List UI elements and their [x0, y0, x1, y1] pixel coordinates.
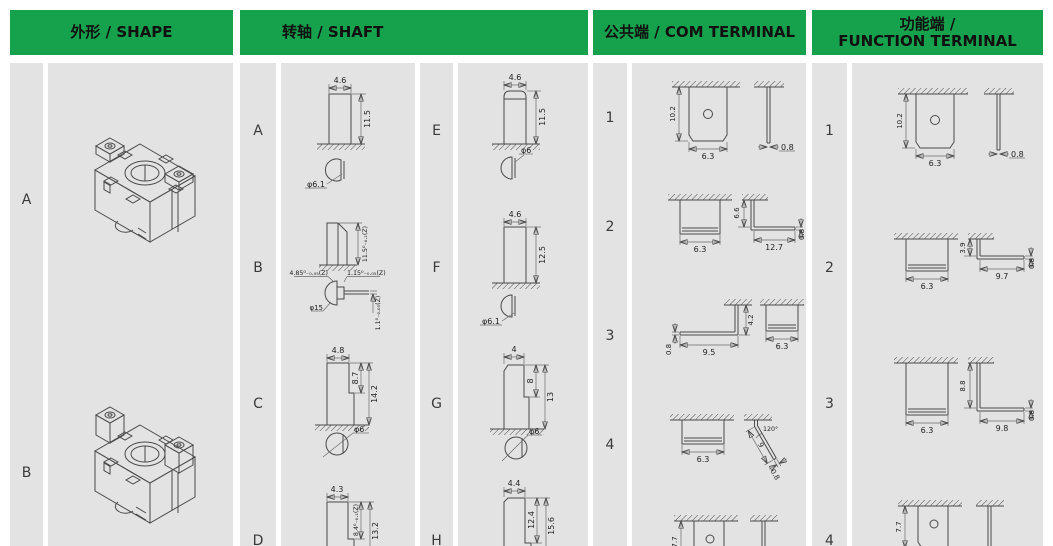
dim-label: 4.2 [747, 314, 755, 325]
shaft-b-cell: 11.5⁰₋₀.₁(Z) 4.85⁰₋₀.₀₅(Z) 1.15⁰₋₀.₀₅(Z)… [281, 200, 415, 337]
function-2-cell: 6.3 3.9 9.7 0.8 [852, 200, 1043, 337]
shaft-drawing-column-2: 4.6 11.5 φ6 4.6 12.5 [458, 63, 588, 546]
shaft-e-drawing: 4.6 11.5 φ6 [458, 72, 588, 190]
shaft-g-drawing: 4 8 13 φ6 [458, 345, 588, 463]
shaft-c-cell: 4.8 8.7 14.2 φ6 [281, 336, 415, 473]
dim-label: 12.7 [765, 243, 783, 252]
dim-label: 4.85⁰₋₀.₀₅(Z) [289, 270, 328, 277]
header-shape-label: 外形 / SHAPE [70, 24, 172, 41]
dim-label: 3.9 [959, 242, 967, 253]
dim-label: 0.8 [798, 229, 806, 240]
shape-b-cell [48, 336, 233, 546]
dim-label: 0.8 [665, 344, 673, 355]
com-terminal-4-drawing: 6.3 120° 9 0.8 [632, 398, 806, 492]
dim-label: 6.3 [697, 455, 710, 464]
dim-label: φ6.1 [307, 180, 325, 189]
dim-label: 14.2 [370, 385, 379, 403]
shape-row-label-b: B [10, 336, 43, 546]
header-shaft-label: 转轴 / SHAFT [282, 24, 383, 41]
dim-label: 7.7 [671, 537, 679, 546]
com-terminal-1-drawing: 10.2 6.3 0.8 [632, 71, 806, 165]
function-terminal-1-drawing: 10.2 6.3 0.8 [852, 72, 1043, 190]
com-drawing-column: 10.2 6.3 0.8 6.3 [632, 63, 806, 546]
dim-label: 13.2 [371, 522, 380, 540]
shape-b-isometric-drawing [48, 355, 233, 546]
shaft-row-label-g: G [420, 336, 453, 473]
com-terminal-2-drawing: 6.3 6.6 12.7 0.8 [632, 180, 806, 274]
com-4-cell: 6.3 120° 9 0.8 [632, 391, 806, 500]
shaft-row-label-b: B [240, 200, 276, 337]
shaft-label-column-1: A B C D [240, 63, 276, 546]
dim-label: 120° [763, 425, 778, 433]
shape-row-label-a: A [10, 63, 43, 336]
shaft-f-drawing: 4.6 12.5 φ6.1 [458, 209, 588, 327]
shaft-row-label-e: E [420, 63, 453, 200]
header-function-terminal: 功能端 / FUNCTION TERMINAL [812, 10, 1043, 55]
dim-label: 13 [546, 392, 555, 402]
dim-label: 6.3 [694, 245, 707, 254]
com-3-cell: 0.8 9.5 4.2 6.3 [632, 281, 806, 390]
shaft-h-cell: 4.4 12.4 15.6 φ6 [458, 473, 588, 546]
com-row-label-4: 4 [593, 391, 627, 500]
dim-label: 1.1⁰₋₀.₀₅(Z) [375, 295, 382, 330]
dim-label: 12.4 [527, 511, 536, 529]
shape-a-isometric-drawing [48, 82, 233, 318]
dim-label: 6.3 [702, 152, 715, 161]
shaft-d-drawing: 4.3 8.4⁰₋₀.₁(Z) 13.2 φ6 [281, 482, 415, 546]
shaft-f-cell: 4.6 12.5 φ6.1 [458, 200, 588, 337]
shaft-c-drawing: 4.8 8.7 14.2 φ6 [281, 345, 415, 463]
shaft-b-drawing: 11.5⁰₋₀.₁(Z) 4.85⁰₋₀.₀₅(Z) 1.15⁰₋₀.₀₅(Z)… [281, 209, 415, 327]
dim-label: φ6 [529, 427, 539, 436]
function-row-label-3: 3 [812, 336, 847, 473]
iso-body-b [95, 407, 195, 523]
dim-label: 7.7 [895, 521, 903, 532]
function-terminal-2-drawing: 6.3 3.9 9.7 0.8 [852, 209, 1043, 327]
dim-label: 4.8 [332, 346, 345, 355]
dim-label: φ6 [354, 425, 364, 434]
header-com-label: 公共端 / COM TERMINAL [604, 24, 795, 41]
dim-label: φ6.1 [482, 317, 500, 326]
com-5-cell: 7.7 4.8 0.8 [632, 500, 806, 546]
header-fn-label-line1: 功能端 / [900, 16, 956, 33]
dim-label: 8.8 [959, 381, 967, 392]
dim-label: 0.8 [1028, 410, 1036, 421]
com-terminal-5-drawing: 7.7 4.8 0.8 [632, 507, 806, 546]
function-terminal-3-drawing: 6.3 8.8 9.8 0.8 [852, 345, 1043, 463]
shaft-label-column-2: E F G H [420, 63, 453, 546]
shape-a-cell [48, 63, 233, 336]
shaft-a-drawing: 4.6 11.5 φ6.1 [281, 72, 415, 190]
dim-label: 6.3 [929, 159, 942, 168]
shaft-g-cell: 4 8 13 φ6 [458, 336, 588, 473]
iso-body-a [95, 138, 195, 242]
dim-label: 0.8 [1028, 258, 1036, 269]
function-terminal-4-drawing: 7.7 4.8 0.8 [852, 482, 1043, 546]
header-shape: 外形 / SHAPE [10, 10, 233, 55]
shape-label-column: A B [10, 63, 43, 546]
shaft-e-cell: 4.6 11.5 φ6 [458, 63, 588, 200]
dim-label: 4.3 [331, 485, 344, 494]
dim-label: 10.2 [669, 106, 677, 122]
dim-label: 6.3 [921, 426, 934, 435]
dim-label: φ6 [521, 146, 531, 155]
dim-label: 6.3 [921, 282, 934, 291]
dim-label: 11.5⁰₋₀.₁(Z) [362, 226, 369, 262]
dim-label: 4.4 [508, 479, 521, 488]
dim-label: 9.8 [996, 424, 1009, 433]
dim-label: 15.6 [547, 517, 556, 535]
shape-drawing-column [48, 63, 233, 546]
header-com-terminal: 公共端 / COM TERMINAL [593, 10, 806, 55]
dim-label: 8.7 [351, 372, 360, 385]
shaft-d-cell: 4.3 8.4⁰₋₀.₁(Z) 13.2 φ6 [281, 473, 415, 546]
shaft-row-label-c: C [240, 336, 276, 473]
dim-label: 9 [756, 441, 765, 449]
dim-label: 11.5 [538, 108, 547, 126]
com-1-cell: 10.2 6.3 0.8 [632, 63, 806, 172]
shaft-row-label-f: F [420, 200, 453, 337]
shaft-row-label-d: D [240, 473, 276, 546]
com-row-label-2: 2 [593, 172, 627, 281]
dim-label: 0.8 [781, 143, 794, 152]
dim-label: 1.15⁰₋₀.₀₅(Z) [347, 270, 386, 277]
function-4-cell: 7.7 4.8 0.8 [852, 473, 1043, 546]
dim-label: 6.3 [776, 342, 789, 351]
shaft-h-drawing: 4.4 12.4 15.6 φ6 [458, 482, 588, 546]
function-row-label-2: 2 [812, 200, 847, 337]
datasheet-page: 外形 / SHAPE 转轴 / SHAFT 公共端 / COM TERMINAL… [0, 0, 1053, 546]
dim-label: 11.5 [363, 110, 372, 128]
dim-label: 4.6 [334, 76, 347, 85]
dim-label: 8 [526, 379, 535, 384]
shaft-drawing-column-1: 4.6 11.5 φ6.1 11.5⁰₋₀.₁(Z) 4.85⁰₋₀. [281, 63, 415, 546]
dim-label: 4.6 [509, 73, 522, 82]
com-2-cell: 6.3 6.6 12.7 0.8 [632, 172, 806, 281]
function-row-label-1: 1 [812, 63, 847, 200]
shaft-a-cell: 4.6 11.5 φ6.1 [281, 63, 415, 200]
shaft-row-label-a: A [240, 63, 276, 200]
dim-label: 0.8 [769, 468, 781, 482]
com-row-label-5: 5 [593, 500, 627, 546]
shaft-row-label-h: H [420, 473, 453, 546]
com-row-label-1: 1 [593, 63, 627, 172]
dim-label: 12.5 [538, 246, 547, 264]
dim-label: 10.2 [896, 113, 904, 129]
dim-label: 9.5 [703, 348, 716, 357]
function-3-cell: 6.3 8.8 9.8 0.8 [852, 336, 1043, 473]
function-label-column: 1 2 3 4 [812, 63, 847, 546]
com-label-column: 1 2 3 4 5 [593, 63, 627, 546]
dim-label: 6.6 [733, 207, 741, 219]
dim-label: 9.7 [996, 272, 1009, 281]
header-shaft: 转轴 / SHAFT [240, 10, 588, 55]
com-row-label-3: 3 [593, 281, 627, 390]
function-row-label-4: 4 [812, 473, 847, 546]
com-terminal-3-drawing: 0.8 9.5 4.2 6.3 [632, 289, 806, 383]
header-fn-label-line2: FUNCTION TERMINAL [838, 33, 1017, 50]
function-drawing-column: 10.2 6.3 0.8 6.3 [852, 63, 1043, 546]
dim-label: 0.8 [1011, 150, 1024, 159]
dim-label: 4 [511, 345, 516, 354]
dim-label: 4.6 [509, 210, 522, 219]
function-1-cell: 10.2 6.3 0.8 [852, 63, 1043, 200]
dim-label: 8.4⁰₋₀.₁(Z) [353, 504, 360, 536]
